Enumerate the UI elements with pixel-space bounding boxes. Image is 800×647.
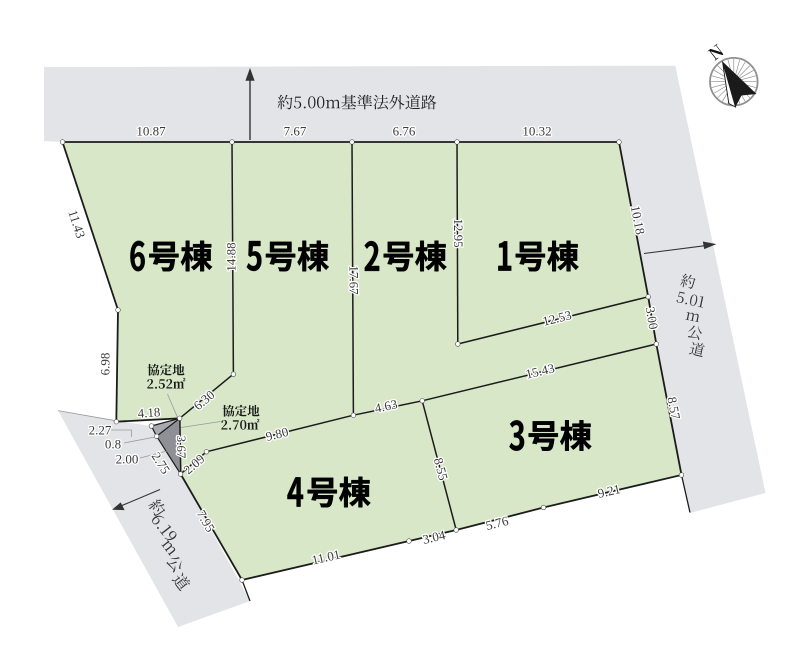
svg-text:0.8: 0.8 [105,437,121,452]
svg-text:17.67: 17.67 [347,265,362,295]
svg-text:3.67: 3.67 [174,436,189,459]
svg-text:10.32: 10.32 [522,124,551,139]
svg-text:6.76: 6.76 [393,124,416,139]
svg-text:2.27: 2.27 [89,423,112,438]
svg-text:10.87: 10.87 [136,124,166,139]
svg-text:12.95: 12.95 [451,218,466,247]
svg-text:14.88: 14.88 [224,242,239,271]
svg-text:2.00: 2.00 [116,452,139,467]
svg-text:6.98: 6.98 [98,353,113,376]
svg-text:7.67: 7.67 [284,124,307,139]
svg-text:4.18: 4.18 [137,404,161,421]
